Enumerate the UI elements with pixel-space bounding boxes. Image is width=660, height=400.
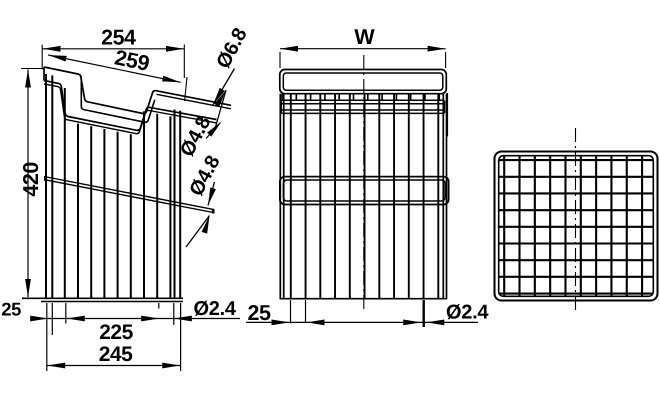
svg-text:Ø2.4: Ø2.4 [446, 302, 489, 324]
svg-text:25: 25 [247, 301, 271, 325]
svg-text:W: W [354, 25, 375, 49]
svg-text:Ø2.4: Ø2.4 [194, 298, 237, 320]
svg-text:420: 420 [19, 162, 43, 197]
svg-text:25: 25 [1, 298, 21, 319]
svg-text:245: 245 [99, 343, 133, 366]
svg-text:225: 225 [99, 321, 133, 344]
